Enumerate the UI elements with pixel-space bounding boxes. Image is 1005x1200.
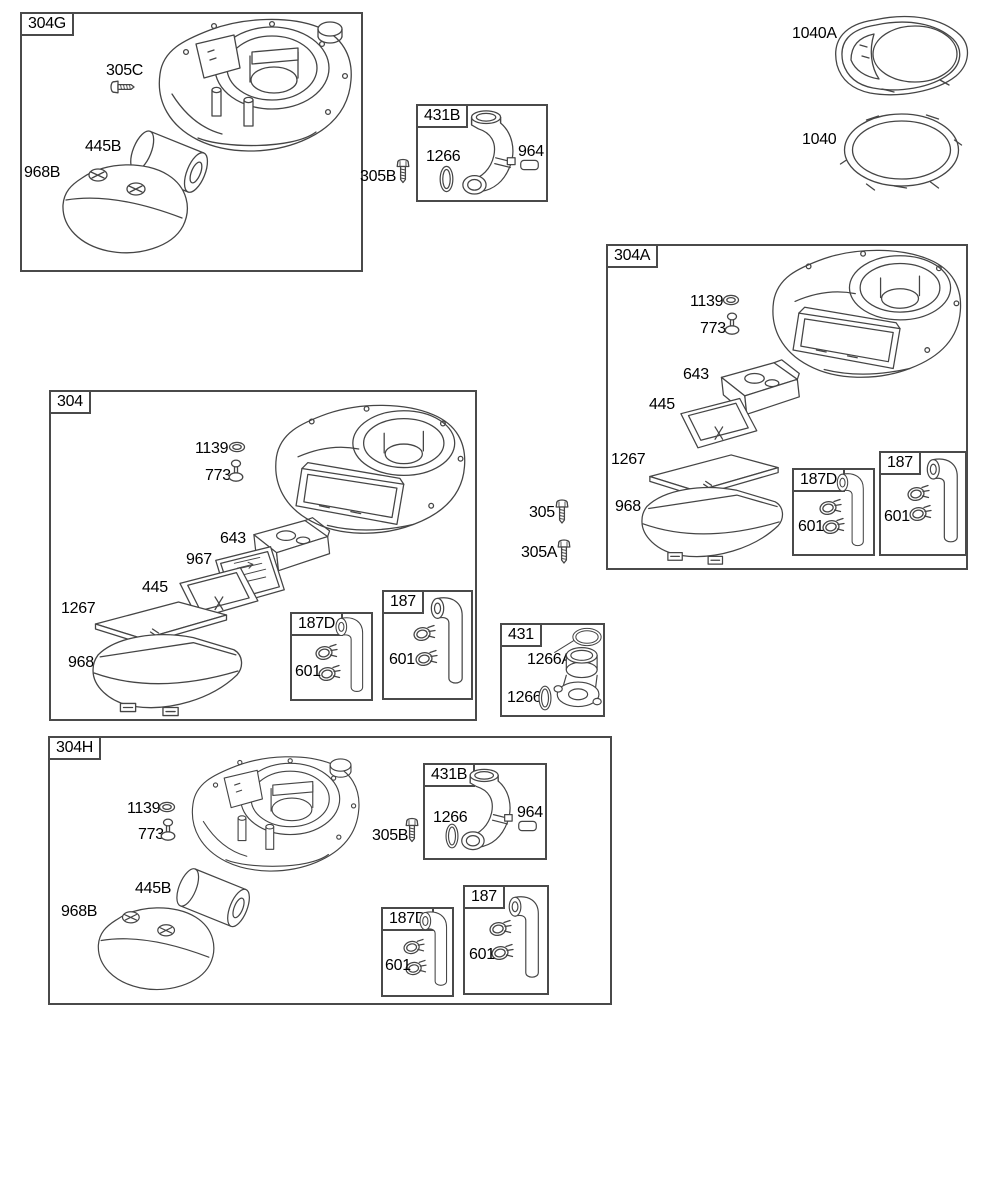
hose-clamp-drawing xyxy=(906,484,930,504)
group-tag-187: 187 xyxy=(463,885,505,909)
hose-clamp-drawing xyxy=(908,504,932,524)
plug-drawing xyxy=(724,312,740,336)
part-label-305: 305 xyxy=(529,504,555,521)
screw-icon xyxy=(405,817,419,844)
hose-clamp-drawing xyxy=(402,938,425,957)
plug-drawing xyxy=(160,818,176,842)
breather-tube-drawing xyxy=(507,888,541,989)
part-label-601: 601 xyxy=(295,663,321,680)
air-cleaner-cover-drawing xyxy=(54,156,194,258)
intake-elbow-drawing xyxy=(458,765,514,853)
part-label-1040: 1040 xyxy=(802,131,836,148)
part-label-1266: 1266 xyxy=(426,148,460,165)
group-tag-187: 187 xyxy=(382,590,424,614)
hose-clamp-drawing xyxy=(314,643,338,663)
group-tag-187: 187 xyxy=(879,451,921,475)
group-tag-304A: 304A xyxy=(606,244,658,268)
blower-housing-drawing xyxy=(186,748,364,882)
hose-clamp-drawing xyxy=(821,517,845,537)
part-label-305B: 305B xyxy=(360,168,396,185)
part-label-305A: 305A xyxy=(521,544,557,561)
air-cleaner-cover-drawing xyxy=(90,898,220,996)
part-label-773: 773 xyxy=(205,467,231,484)
part-label-601: 601 xyxy=(389,651,415,668)
part-label-445B: 445B xyxy=(85,138,121,155)
part-label-1139: 1139 xyxy=(690,293,723,310)
part-label-1139: 1139 xyxy=(195,440,228,457)
screw-icon xyxy=(396,158,410,185)
group-tag-304G: 304G xyxy=(20,12,74,36)
plug-drawing xyxy=(228,459,244,483)
part-label-643: 643 xyxy=(683,366,709,383)
retainer-ring-drawing xyxy=(838,108,965,196)
group-tag-304: 304 xyxy=(49,390,91,414)
screw-icon xyxy=(110,80,140,94)
air-cleaner-cover-drawing xyxy=(633,474,789,566)
air-cleaner-cover-drawing xyxy=(86,620,246,718)
part-label-773: 773 xyxy=(700,320,726,337)
group-tag-304H: 304H xyxy=(48,736,101,760)
part-label-1139: 1139 xyxy=(127,800,160,817)
hose-clamp-drawing xyxy=(488,919,512,939)
hose-clamp-drawing xyxy=(818,498,842,518)
blower-housing-cover-drawing xyxy=(818,9,972,101)
part-label-601: 601 xyxy=(385,957,411,974)
washer-drawing xyxy=(158,801,176,813)
intake-elbow-drawing xyxy=(459,107,517,197)
part-label-601: 601 xyxy=(884,508,910,525)
part-label-1267: 1267 xyxy=(611,451,645,468)
o-ring-drawing xyxy=(439,165,454,193)
parts-diagram-canvas: 304G 431B 304A 304 431 304H 187D 187 187… xyxy=(0,0,1005,1200)
part-label-445B: 445B xyxy=(135,880,171,897)
washer-drawing xyxy=(722,294,740,306)
carburetor-spacer-drawing xyxy=(550,644,608,712)
o-ring-drawing xyxy=(445,822,459,850)
part-label-601: 601 xyxy=(798,518,824,535)
part-label-305B: 305B xyxy=(372,827,408,844)
screw-icon xyxy=(557,539,571,565)
part-label-964: 964 xyxy=(518,143,544,160)
hose-clamp-drawing xyxy=(414,649,438,669)
breather-tube-drawing xyxy=(925,455,960,549)
part-label-964: 964 xyxy=(517,804,543,821)
screw-icon xyxy=(555,499,569,525)
part-label-305C: 305C xyxy=(106,62,143,79)
group-tag-431: 431 xyxy=(500,623,542,647)
part-label-601: 601 xyxy=(469,946,495,963)
washer-drawing xyxy=(228,441,246,453)
foam-seal-drawing xyxy=(519,159,540,171)
foam-seal-drawing xyxy=(517,820,538,832)
hose-clamp-drawing xyxy=(412,624,436,644)
part-label-1266: 1266 xyxy=(507,689,541,706)
